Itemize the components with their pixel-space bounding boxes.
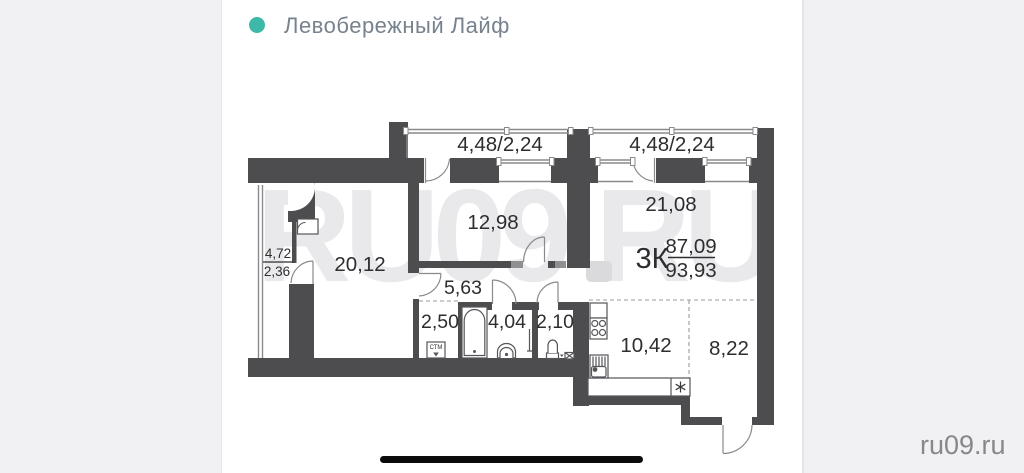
svg-text:4,04: 4,04: [488, 311, 526, 333]
svg-text:4,48/2,24: 4,48/2,24: [629, 133, 715, 156]
svg-text:2,50: 2,50: [421, 311, 459, 333]
svg-text:93,93: 93,93: [665, 259, 716, 282]
svg-text:20,12: 20,12: [334, 253, 385, 276]
svg-text:2,10: 2,10: [536, 311, 574, 333]
svg-text:21,08: 21,08: [645, 193, 696, 216]
svg-text:4,48/2,24: 4,48/2,24: [457, 133, 543, 156]
svg-text:3К: 3К: [635, 243, 668, 275]
svg-text:8,22: 8,22: [709, 337, 749, 360]
svg-text:12,98: 12,98: [467, 211, 518, 234]
svg-text:СТМ: СТМ: [430, 345, 443, 351]
svg-text:5,63: 5,63: [444, 277, 482, 299]
svg-text:87,09: 87,09: [665, 235, 716, 258]
svg-text:2,36: 2,36: [264, 264, 290, 279]
svg-text:4,72: 4,72: [265, 246, 291, 261]
svg-text:10,42: 10,42: [620, 334, 671, 357]
